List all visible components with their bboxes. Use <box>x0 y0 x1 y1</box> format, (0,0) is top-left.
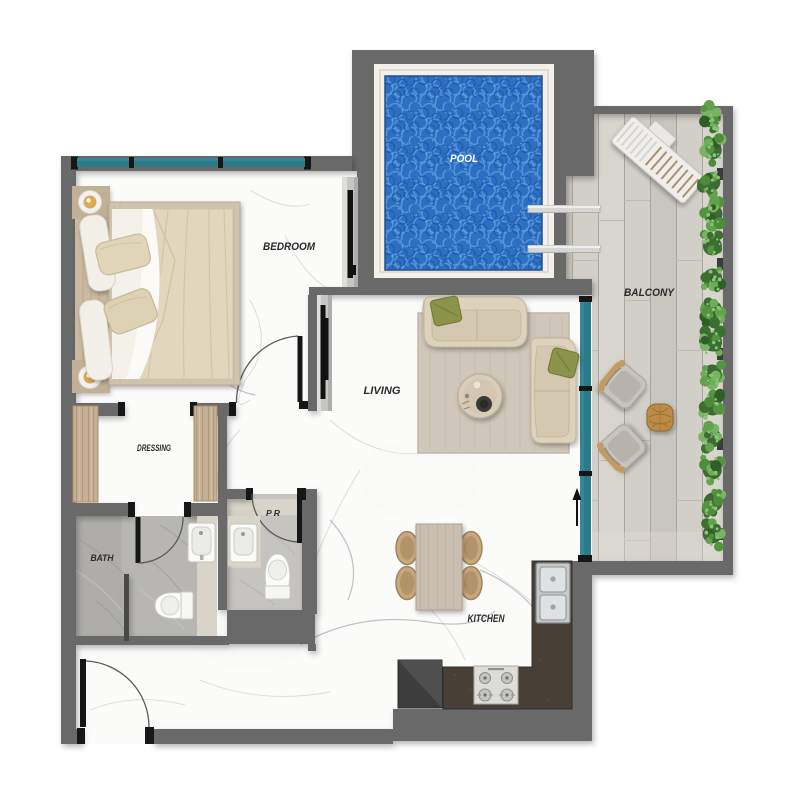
svg-text:P R: P R <box>266 509 280 518</box>
svg-text:POOL: POOL <box>450 153 478 165</box>
svg-text:KITCHEN: KITCHEN <box>468 613 506 625</box>
svg-text:LIVING: LIVING <box>364 385 401 397</box>
svg-text:BEDROOM: BEDROOM <box>263 241 316 253</box>
svg-text:BALCONY: BALCONY <box>624 287 676 299</box>
svg-text:DRESSING: DRESSING <box>137 443 171 453</box>
svg-text:BATH: BATH <box>91 553 115 564</box>
